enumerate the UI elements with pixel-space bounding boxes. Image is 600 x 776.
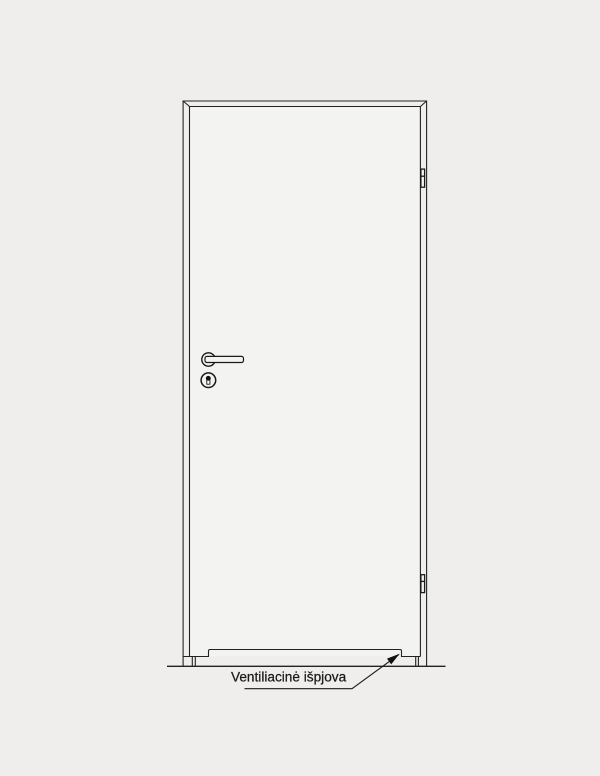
svg-text:Ventiliacinė išpjova: Ventiliacinė išpjova: [231, 670, 347, 685]
